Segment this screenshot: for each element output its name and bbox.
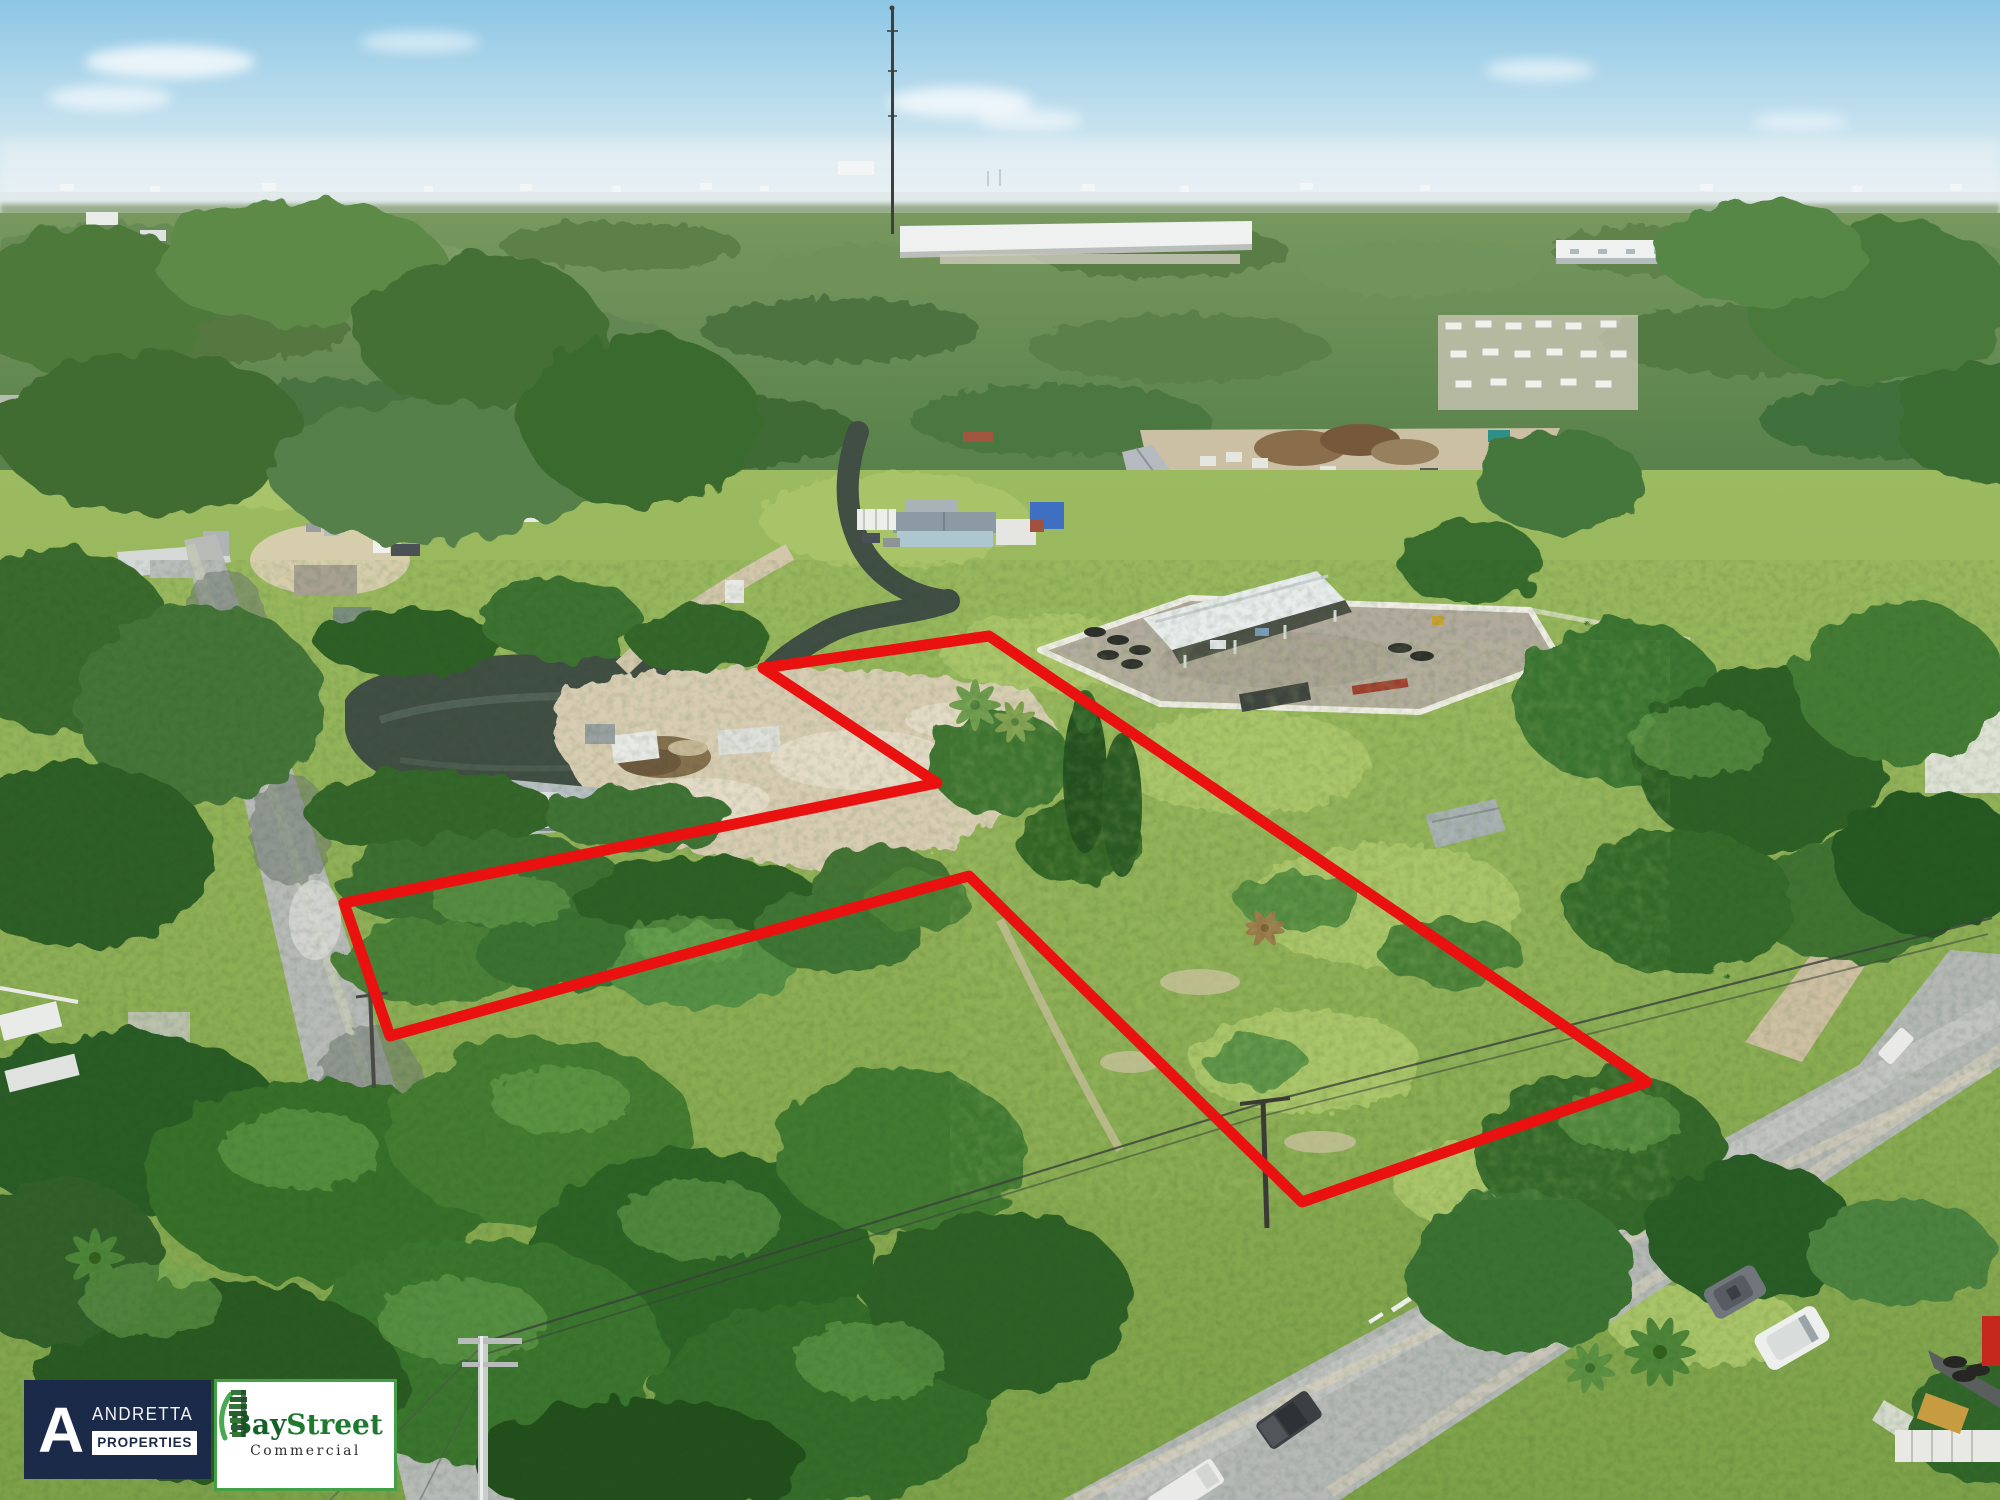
blue-tarp-shed xyxy=(1030,502,1064,532)
andretta-name: ANDRETTA xyxy=(92,1404,193,1425)
baystreet-commercial-logo: BayStreet Commercial xyxy=(214,1379,397,1491)
warehouse-roof-1 xyxy=(900,221,1252,264)
baystreet-name: BayStreet xyxy=(228,1411,383,1439)
andretta-initial: A xyxy=(38,1398,82,1462)
aerial-photo: A ANDRETTA PROPERTIES BayStreet Commerci… xyxy=(0,0,2000,1500)
red-truck xyxy=(1982,1316,2000,1366)
scene xyxy=(0,0,2000,1500)
baystreet-building-icon xyxy=(217,1382,251,1446)
andretta-sub-box: PROPERTIES xyxy=(92,1431,197,1455)
andretta-properties-logo: A ANDRETTA PROPERTIES xyxy=(24,1380,211,1479)
andretta-sub: PROPERTIES xyxy=(97,1435,192,1450)
baystreet-sub: Commercial xyxy=(250,1443,361,1459)
mobile-home-park xyxy=(1438,315,1638,410)
